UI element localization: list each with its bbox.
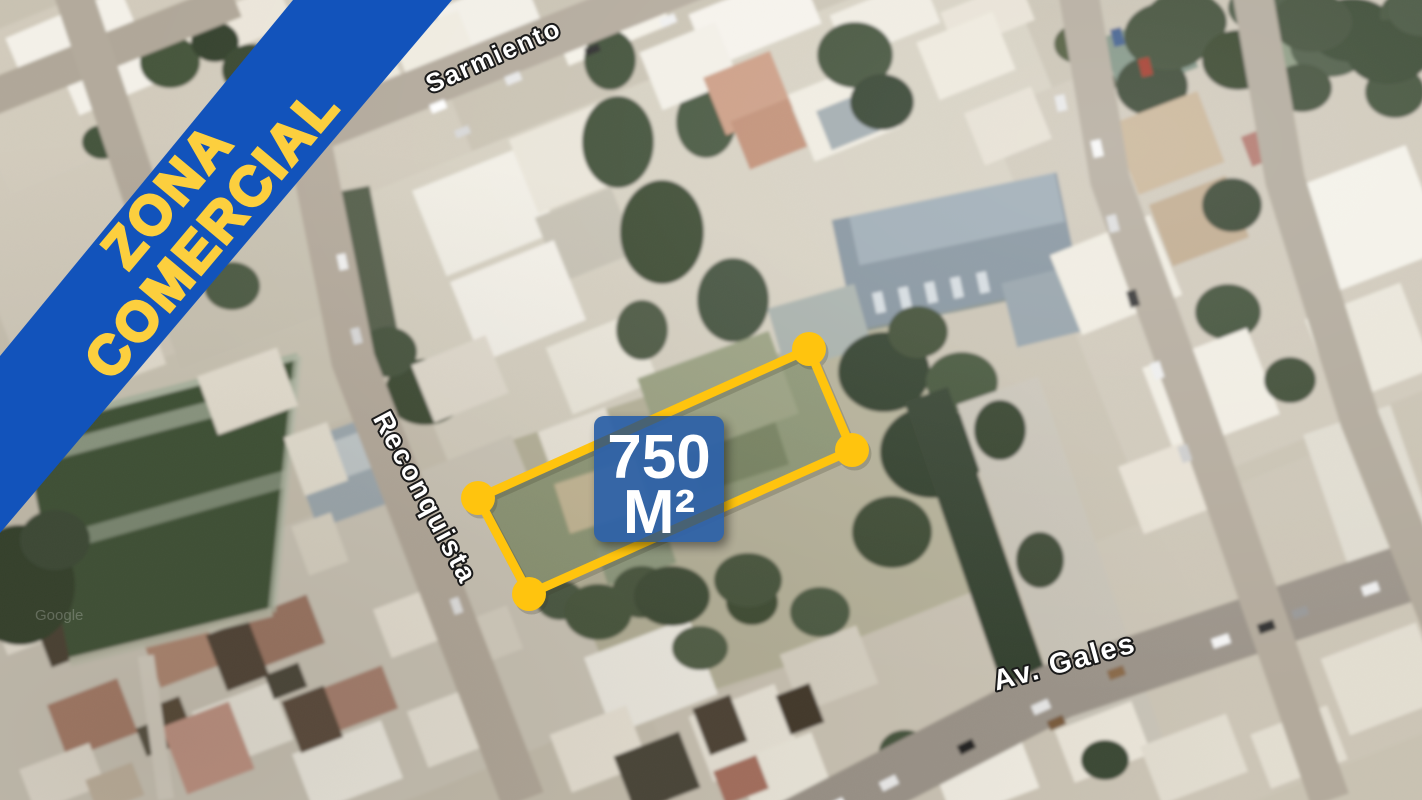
svg-text:Google: Google — [35, 607, 83, 624]
svg-text:M²: M² — [623, 478, 695, 547]
